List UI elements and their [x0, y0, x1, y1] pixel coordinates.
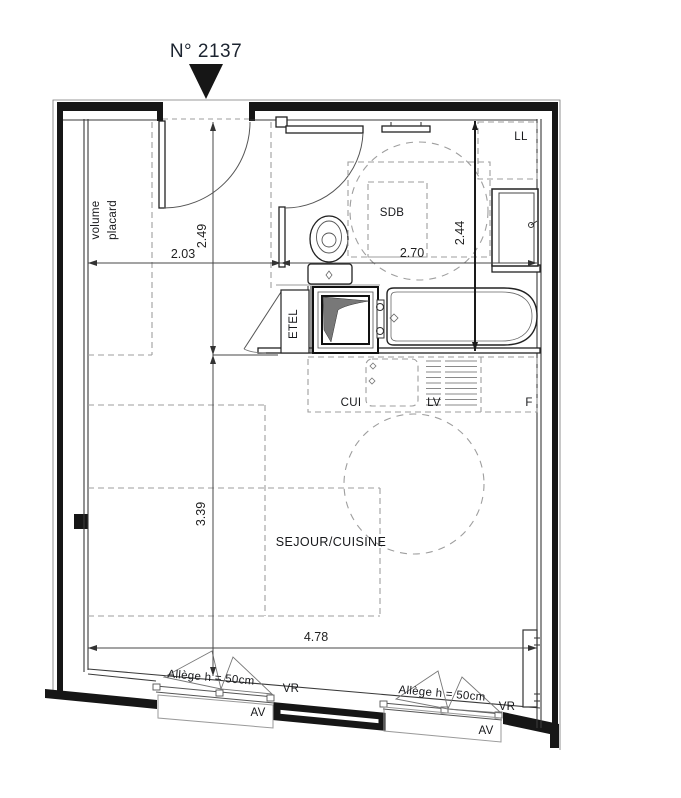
etel-label: ETEL: [288, 309, 300, 339]
door-jamb-left: [157, 102, 163, 121]
toilet-bowl: [310, 216, 348, 262]
awning-label-1: AV: [250, 707, 265, 719]
sill-height-note-1: Allège h = 50cm: [167, 668, 255, 687]
awning-label-2: AV: [478, 725, 493, 737]
exterior-walls: [45, 102, 559, 748]
living-turning-circle: [344, 414, 484, 554]
shutter-label-1: VR: [283, 683, 300, 695]
dim-living-width: 4.78: [304, 630, 328, 644]
radiator: [523, 630, 540, 707]
towel-radiator: [382, 122, 430, 132]
washing-machine-label: LL: [514, 131, 528, 143]
washbasin: [492, 189, 538, 266]
door-jamb-right: [249, 102, 255, 121]
entrance-door-leaf: [159, 121, 165, 208]
technical-duct: [313, 287, 378, 353]
placard-label-line1: volume: [90, 201, 102, 240]
bathroom-door-stub-wall: [279, 207, 285, 267]
entrance-arrow-icon: [189, 64, 223, 99]
etel-door: [244, 292, 281, 353]
furniture-zones: [88, 405, 380, 616]
dim-bath-depth: 2.44: [453, 221, 467, 245]
bathroom-door-swing-arc: [285, 133, 363, 208]
sink-tap-icon: [370, 363, 376, 369]
dim-living-depth: 3.39: [194, 502, 208, 526]
kitchen-label: CUI: [341, 397, 362, 409]
wall-pilaster: [74, 514, 88, 529]
toilet: [308, 216, 352, 284]
unit-number-label: N° 2137: [170, 41, 242, 62]
entrance-door: [159, 119, 250, 208]
dim-bath-width: 2.70: [400, 246, 424, 260]
dim-entry-depth: 2.49: [195, 224, 209, 248]
dimension-lines: [88, 121, 537, 676]
outer-contour: [53, 100, 560, 750]
bathtub: [377, 288, 538, 345]
labels: volume placard SDB LL ETEL CUI LV F SEJO…: [90, 131, 533, 737]
shutter-label-2: VR: [499, 701, 516, 713]
entrance-door-swing-arc: [164, 122, 250, 208]
washing-machine-zone: [478, 122, 537, 179]
floor-plan-page: N° 2137: [0, 0, 681, 798]
etel-door-leaf: [244, 292, 281, 349]
dim-entry-width: 2.03: [171, 247, 195, 261]
placard-label-line2: placard: [107, 200, 119, 240]
bathroom-door-leaf: [286, 126, 363, 133]
interior-wall-faces: [63, 119, 541, 728]
dishwasher-label: LV: [427, 397, 441, 409]
facade-pier-middle: [277, 706, 382, 727]
facade-segment-left: [45, 689, 157, 709]
toilet-tank: [308, 264, 352, 284]
shower-evolution-zone: [348, 162, 490, 257]
fridge-label: F: [525, 397, 532, 409]
living-room-label: SEJOUR/CUISINE: [276, 535, 386, 549]
bathroom-label: SDB: [380, 207, 405, 219]
floor-plan-drawing: N° 2137: [0, 0, 681, 798]
